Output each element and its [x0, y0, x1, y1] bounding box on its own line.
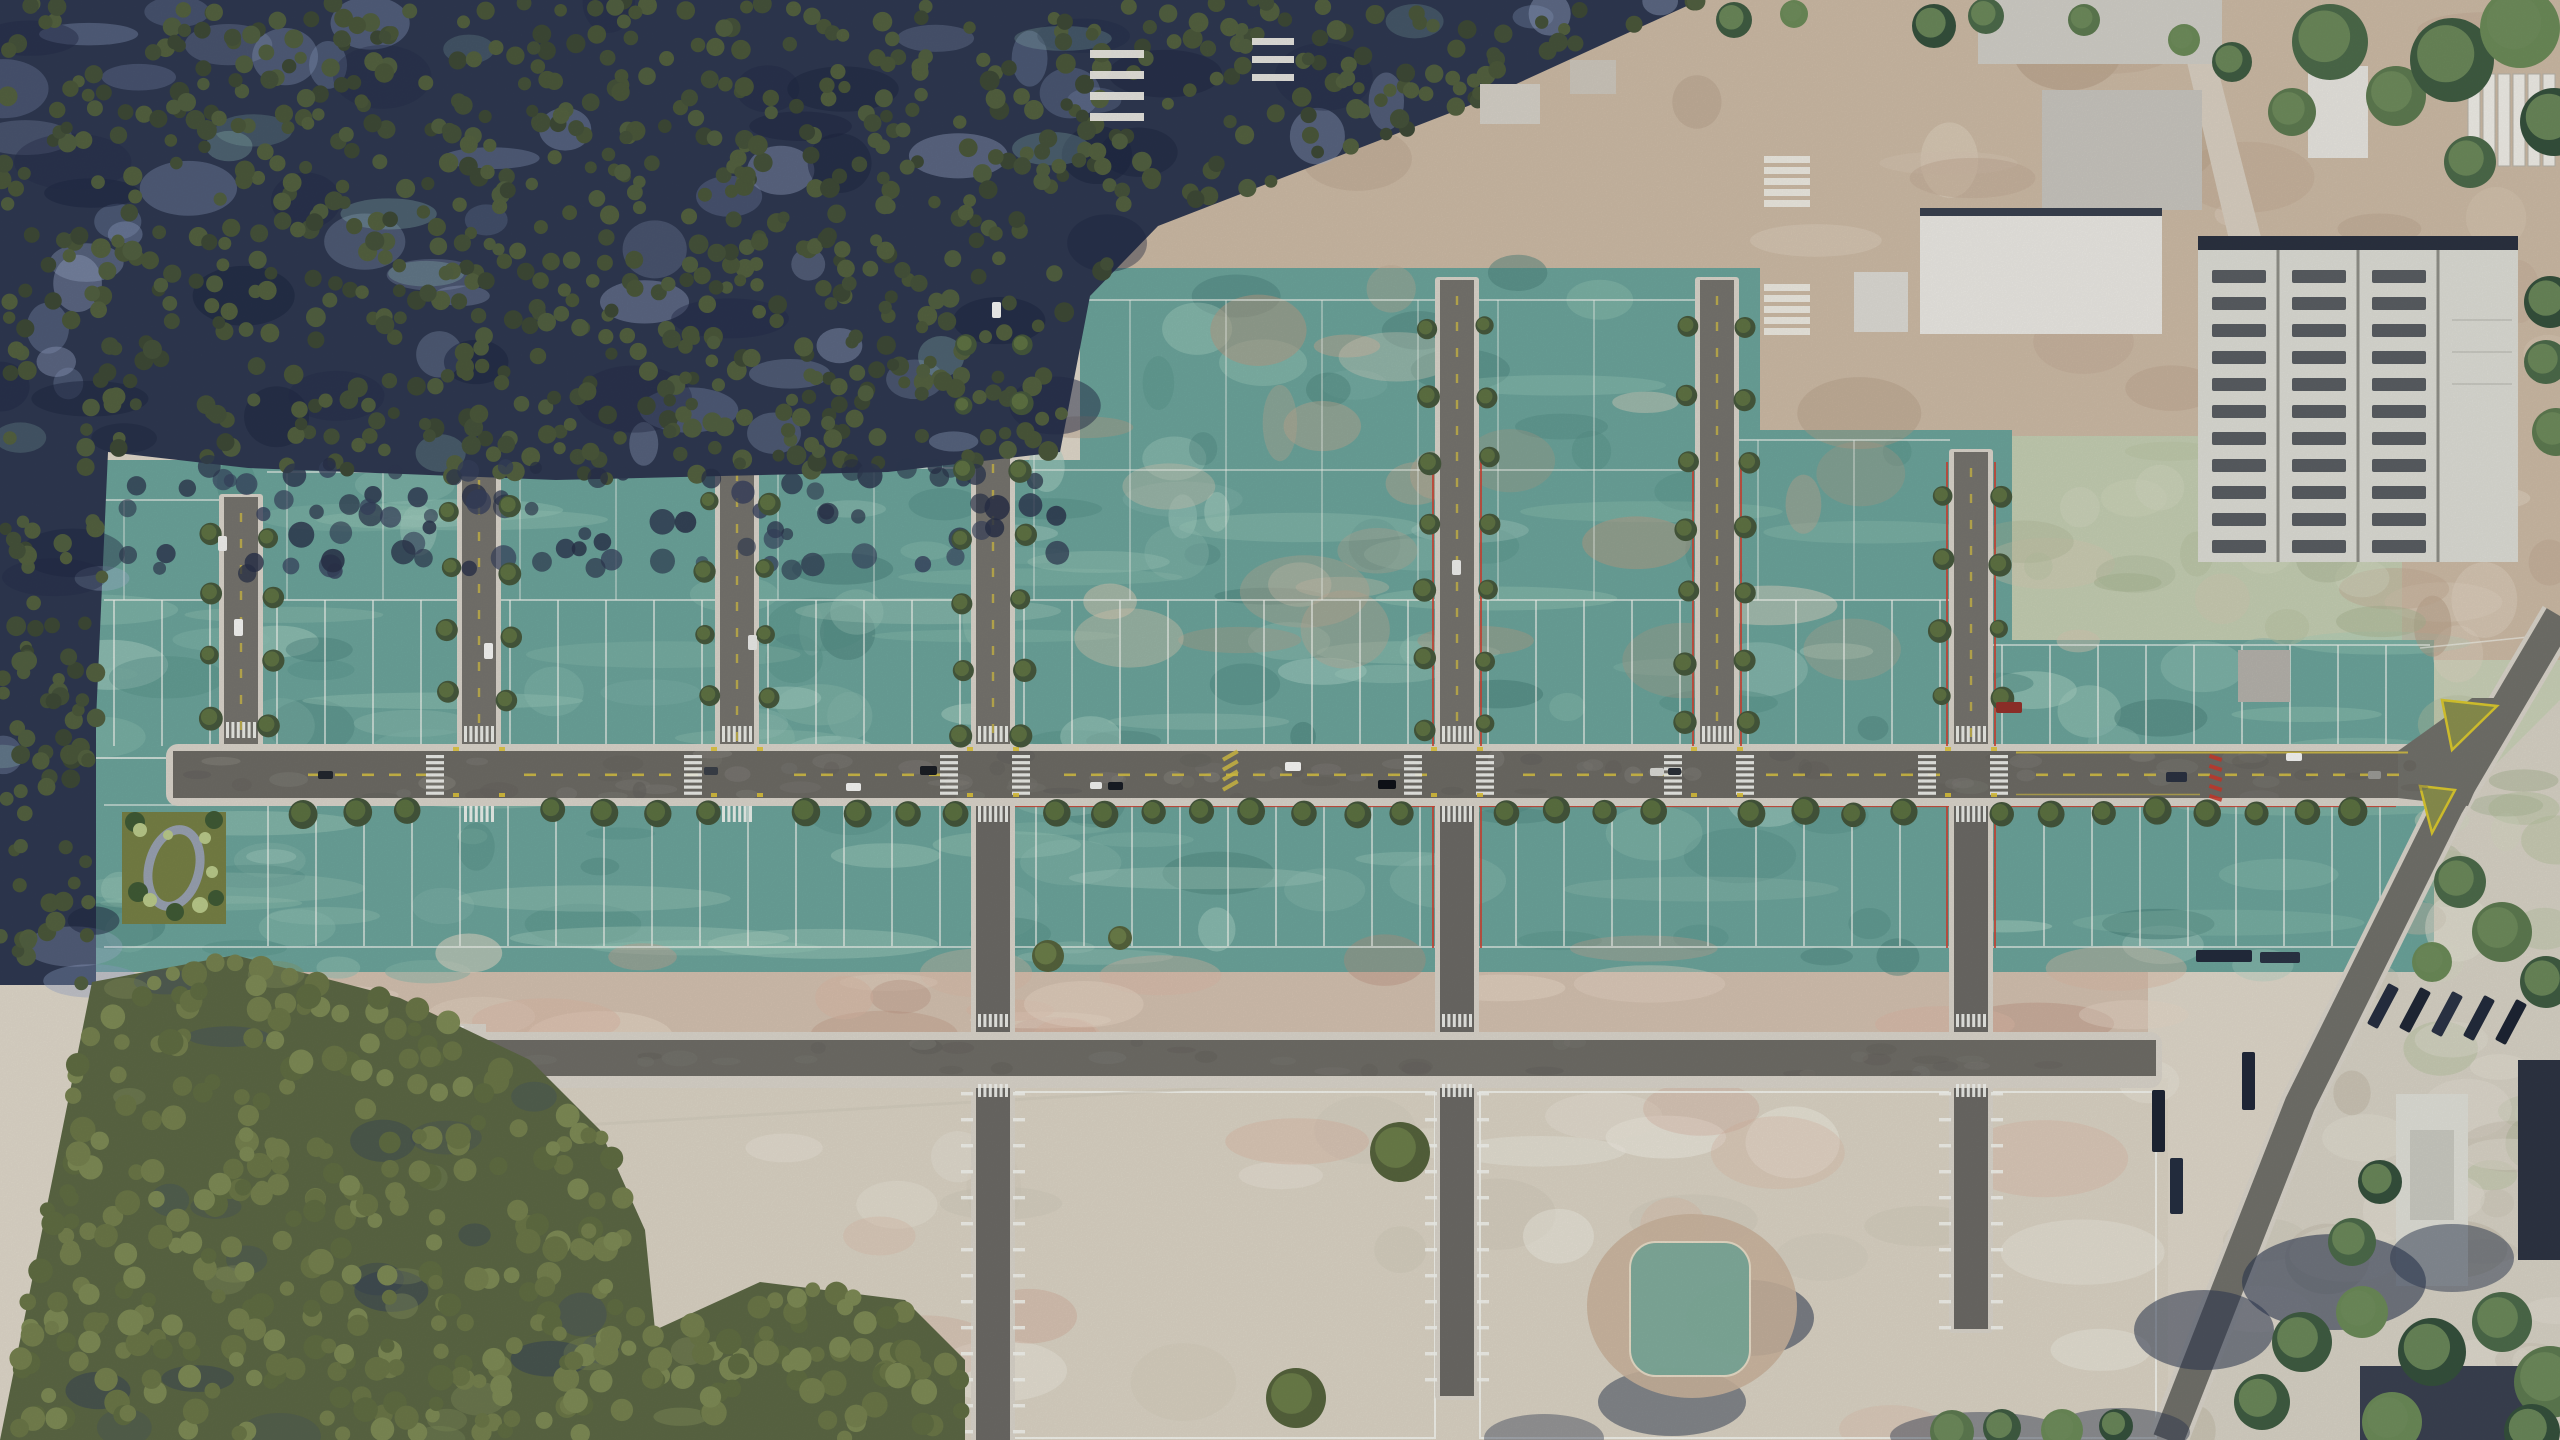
grain-overlay [0, 0, 2560, 1440]
satellite-masterplan-view [0, 0, 2560, 1440]
aerial-site-plan [0, 0, 2560, 1440]
fx-layer [0, 0, 2560, 1440]
